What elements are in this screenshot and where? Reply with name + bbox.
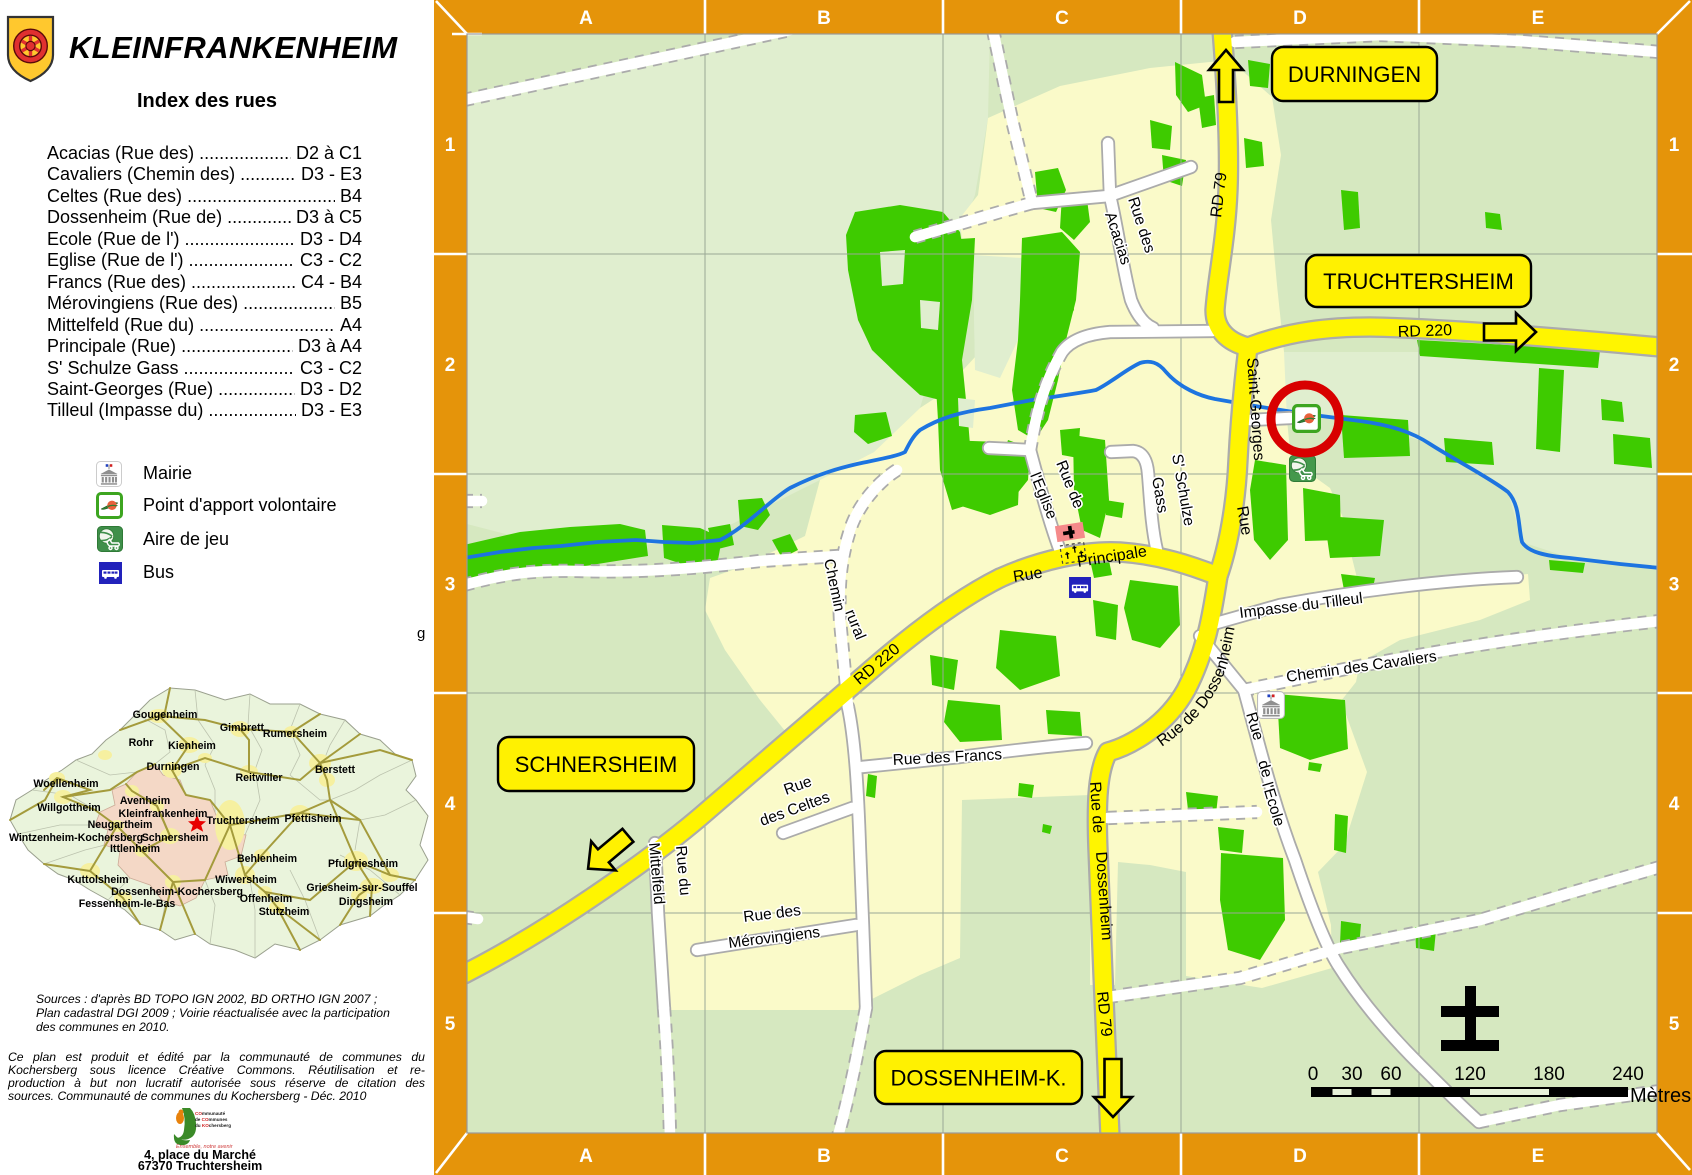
svg-text:180: 180 [1533,1064,1565,1085]
svg-text:0: 0 [1308,1064,1319,1085]
svg-text:RD 220: RD 220 [1398,322,1453,341]
svg-text:A: A [579,8,593,29]
svg-text:Avenheim: Avenheim [120,795,170,807]
svg-text:Kuttolsheim: Kuttolsheim [67,874,128,886]
svg-text:Truchtersheim: Truchtersheim [206,815,279,827]
svg-text:5: 5 [1669,1014,1680,1035]
svg-text:Fessenheim-le-Bas: Fessenheim-le-Bas [79,898,176,910]
svg-text:C: C [1055,1146,1069,1167]
svg-text:Ittlenheim: Ittlenheim [110,843,160,855]
svg-text:Stutzheim: Stutzheim [259,906,310,918]
svg-text:4: 4 [445,794,456,815]
svg-text:TRUCHTERSHEIM: TRUCHTERSHEIM [1323,269,1514,294]
svg-text:COmmunauté: COmmunauté [195,1111,226,1116]
svg-text:B: B [817,1146,831,1167]
svg-text:Kienheim: Kienheim [168,740,216,752]
svg-text:DOSSENHEIM-K.: DOSSENHEIM-K. [890,1065,1066,1090]
svg-text:Reitwiller: Reitwiller [235,772,282,784]
svg-text:Mètres: Mètres [1630,1085,1691,1107]
svg-text:Berstett: Berstett [315,764,356,776]
svg-text:Durningen: Durningen [147,761,200,773]
svg-text:120: 120 [1454,1064,1486,1085]
svg-text:E: E [1532,8,1545,29]
svg-text:30: 30 [1341,1064,1362,1085]
svg-text:E: E [1532,1146,1545,1167]
svg-text:SCHNERSHEIM: SCHNERSHEIM [515,752,678,777]
svg-text:2: 2 [445,355,456,376]
svg-text:1: 1 [1669,135,1680,156]
svg-text:Rumersheim: Rumersheim [263,728,327,740]
svg-text:Woellenheim: Woellenheim [33,778,98,790]
svg-text:Rue de: Rue de [1086,781,1107,834]
svg-text:B: B [817,8,831,29]
svg-text:Behlenheim: Behlenheim [237,853,297,865]
svg-text:Griesheim-sur-Souffel: Griesheim-sur-Souffel [306,882,417,894]
svg-text:D: D [1293,1146,1307,1167]
svg-text:3: 3 [445,575,456,596]
svg-text:60: 60 [1380,1064,1401,1085]
svg-text:Pfulgriesheim: Pfulgriesheim [328,858,398,870]
svg-text:Gougenheim: Gougenheim [133,709,198,721]
svg-text:1: 1 [445,135,456,156]
svg-text:Offenheim: Offenheim [240,893,292,905]
svg-text:2: 2 [1669,355,1680,376]
svg-text:Dossenheim-Kochersberg: Dossenheim-Kochersberg [111,886,243,898]
svg-text:Gimbrett: Gimbrett [220,722,265,734]
svg-text:4: 4 [1669,794,1680,815]
svg-text:Dingsheim: Dingsheim [339,896,393,908]
svg-text:DURNINGEN: DURNINGEN [1288,62,1421,87]
svg-text:du KOchersberg: du KOchersberg [195,1123,231,1128]
svg-text:C: C [1055,8,1069,29]
svg-text:D: D [1293,8,1307,29]
svg-text:de COmmunes: de COmmunes [195,1117,228,1122]
svg-text:Wiwersheim: Wiwersheim [215,874,277,886]
svg-text:240: 240 [1612,1064,1644,1085]
svg-text:A: A [579,1146,593,1167]
svg-text:Rohr: Rohr [129,737,154,749]
svg-text:Neugartheim: Neugartheim [88,819,153,831]
svg-text:Pfettisheim: Pfettisheim [284,813,341,825]
svg-text:5: 5 [445,1014,456,1035]
svg-text:Willgottheim: Willgottheim [37,802,100,814]
svg-text:3: 3 [1669,575,1680,596]
